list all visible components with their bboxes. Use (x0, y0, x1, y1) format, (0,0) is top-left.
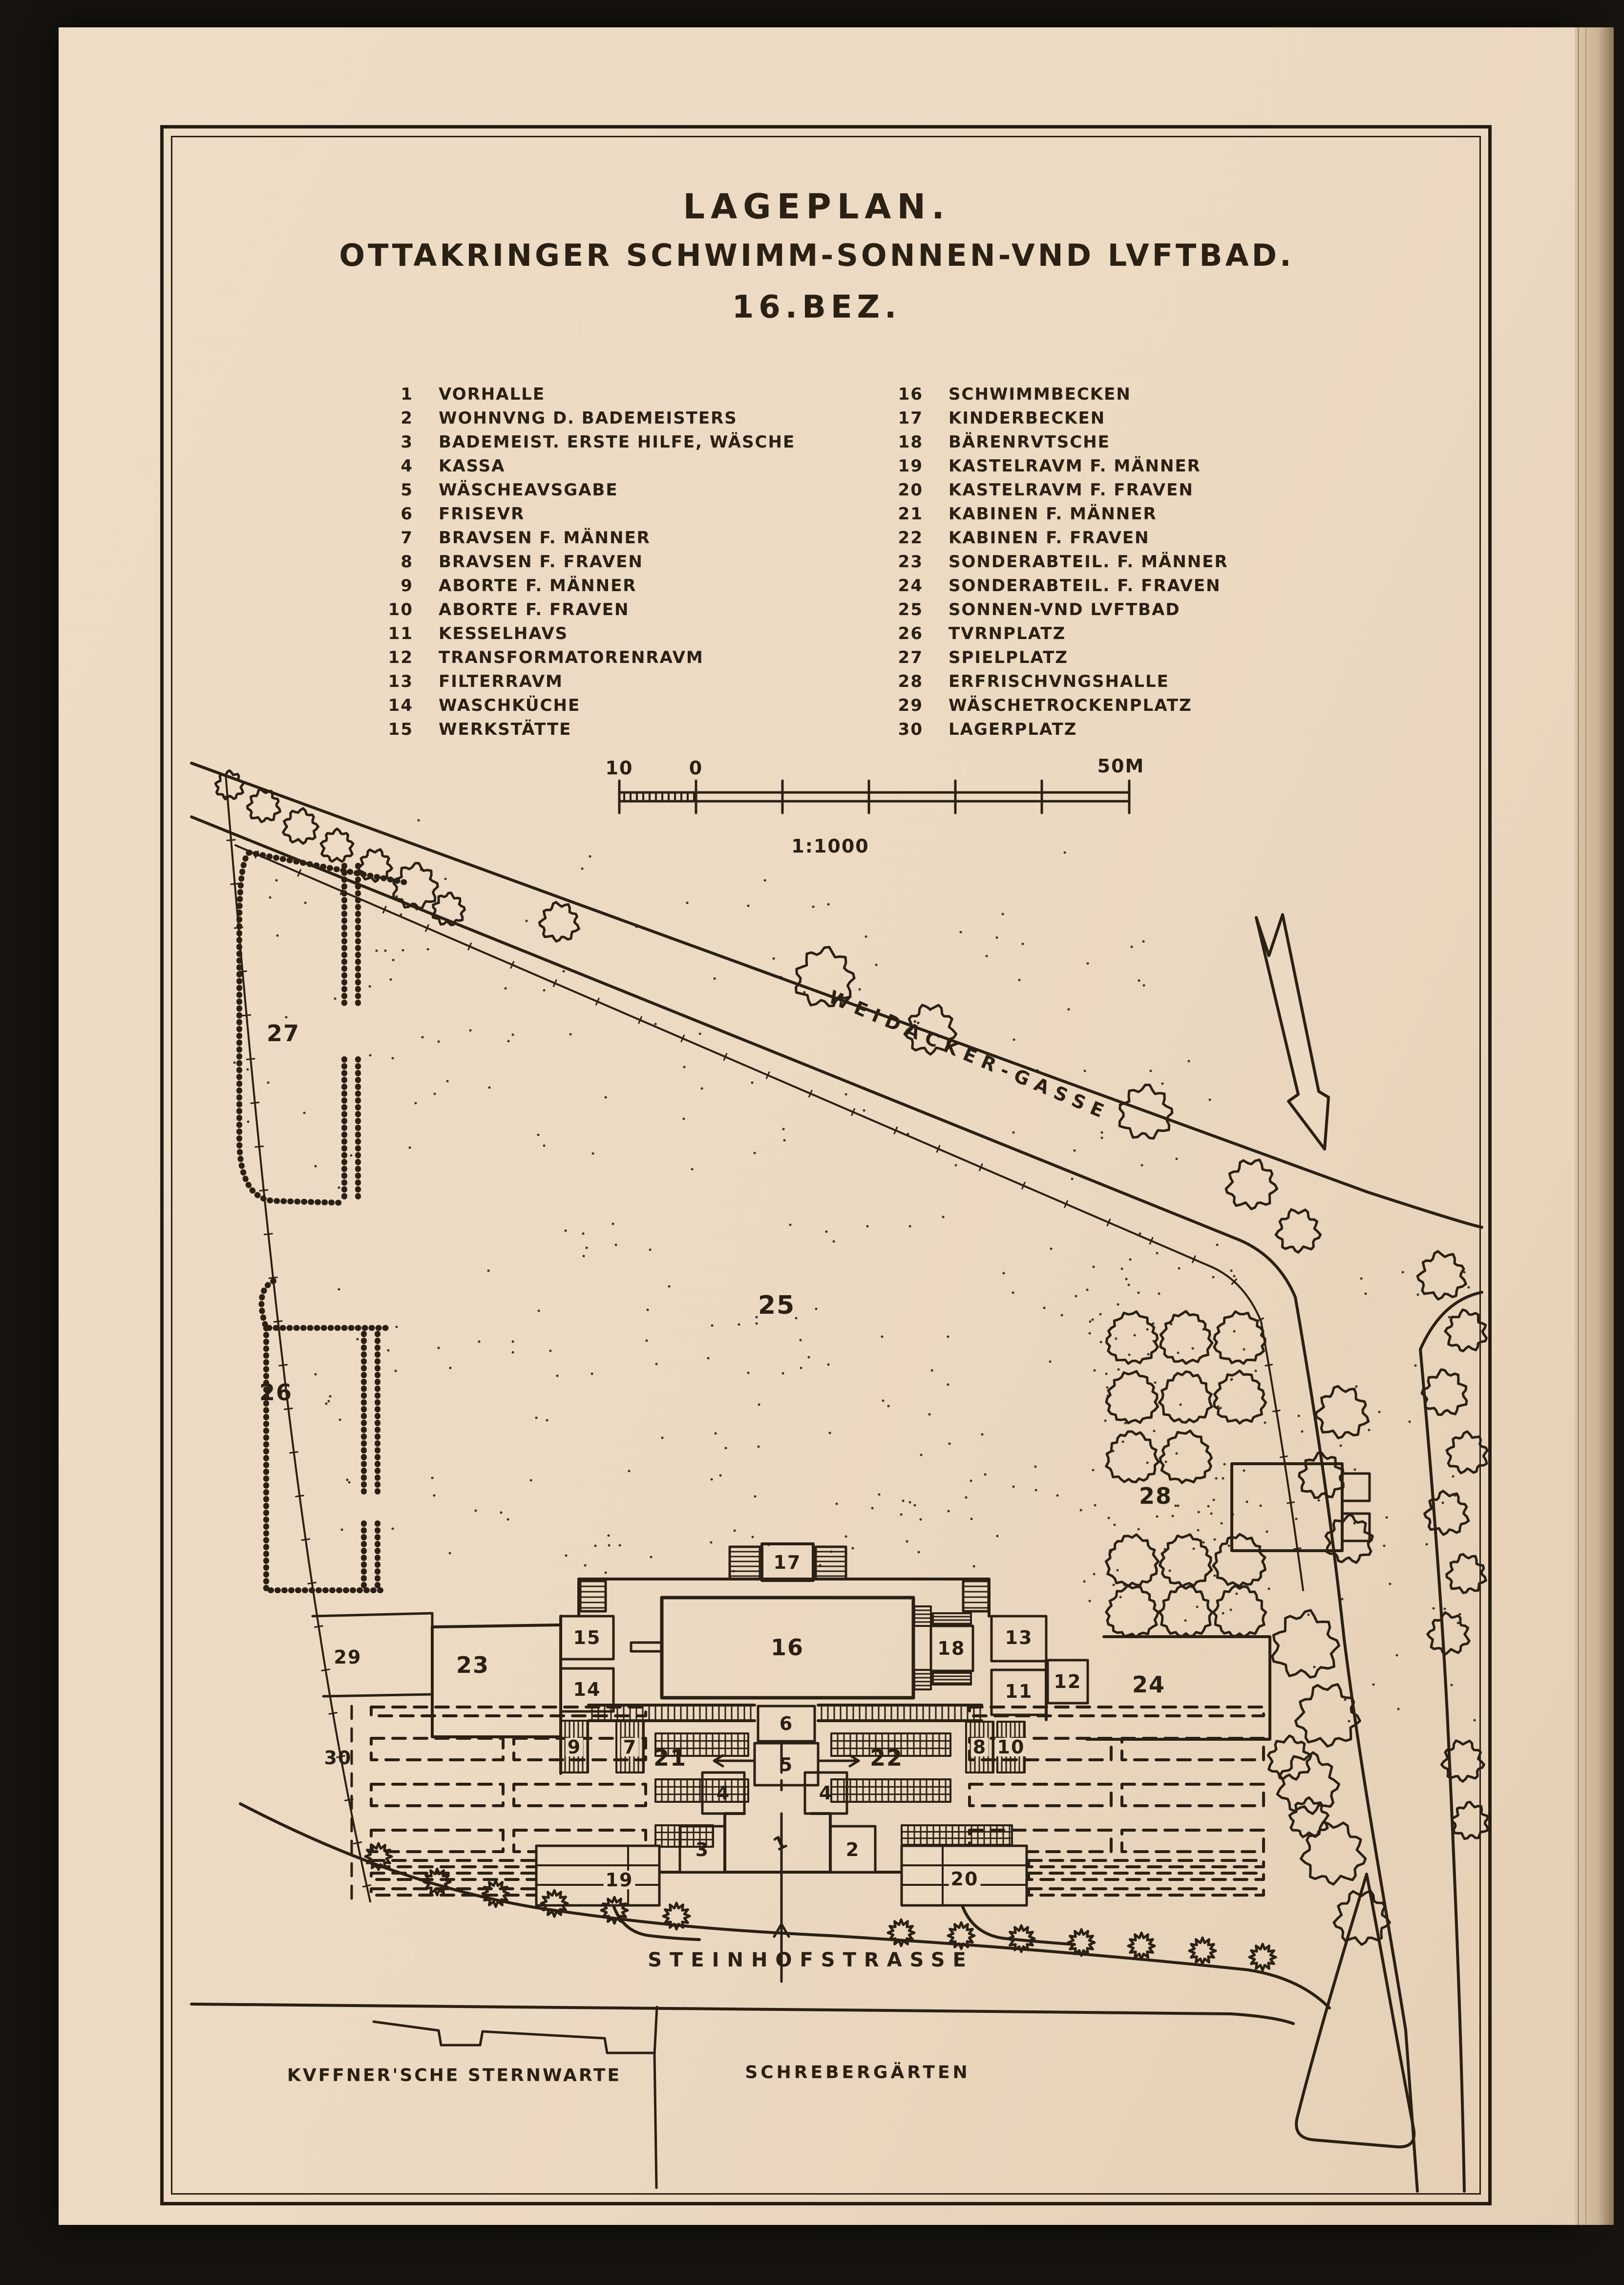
legend-item-number: 10 (372, 600, 413, 619)
plan-label-7: 7 (621, 1738, 639, 1756)
legend-item-number: 17 (882, 408, 923, 428)
legend-item-label: KESSELHAVS (439, 624, 568, 643)
legend-item-label: KINDERBECKEN (949, 408, 1105, 428)
plan-subtitle: OTTAKRINGER SCHWIMM-SONNEN-VND LVFTBAD. (59, 237, 1575, 273)
legend-item-label: WASCHKÜCHE (439, 696, 580, 715)
legend-item-label: ERFRISCHVNGSHALLE (949, 672, 1169, 691)
legend-item-label: SONDERABTEIL. F. FRAVEN (949, 576, 1221, 596)
legend-item-number: 21 (882, 504, 923, 524)
book-page-edge (1575, 27, 1614, 2225)
plan-label-4-right: 4 (819, 1784, 833, 1802)
legend-item-number: 24 (882, 576, 923, 596)
plan-label-22: 22 (870, 1747, 903, 1769)
legend-item: 23SONDERABTEIL. F. MÄNNER (882, 550, 1228, 574)
legend-item: 17KINDERBECKEN (882, 406, 1228, 430)
street-label-steinhofstrasse: STEINHOFSTRASSE (648, 1949, 974, 1971)
legend-item-number: 13 (372, 672, 413, 691)
plan-label-8: 8 (971, 1738, 989, 1756)
legend-item-label: WÄSCHETROCKENPLATZ (949, 696, 1192, 715)
legend-item-number: 15 (372, 720, 413, 739)
plan-label-18: 18 (936, 1639, 968, 1658)
legend-item: 12TRANSFORMATORENRAVM (372, 645, 795, 669)
legend-item: 7BRAVSEN F. MÄNNER (372, 526, 795, 550)
legend-item-label: KASTELRAVM F. FRAVEN (949, 480, 1194, 500)
legend-item: 3BADEMEIST. ERSTE HILFE, WÄSCHE (372, 430, 795, 454)
legend-item: 18BÄRENRVTSCHE (882, 430, 1228, 454)
legend-item-number: 26 (882, 624, 923, 643)
legend-item-label: BRAVSEN F. FRAVEN (439, 552, 643, 572)
legend-item-number: 23 (882, 552, 923, 572)
legend-item-number: 12 (372, 648, 413, 667)
legend-item: 19KASTELRAVM F. MÄNNER (882, 454, 1228, 478)
legend-item-number: 3 (372, 432, 413, 452)
legend-item-label: WÄSCHEAVSGABE (439, 480, 618, 500)
plan-label-3: 3 (696, 1840, 709, 1859)
legend-item: 9ABORTE F. MÄNNER (372, 574, 795, 598)
plan-label-30: 30 (324, 1749, 352, 1767)
plan-label-24: 24 (1132, 1673, 1165, 1696)
legend-item: 11KESSELHAVS (372, 621, 795, 645)
legend-item-label: TRANSFORMATORENRAVM (439, 648, 704, 667)
legend-item-label: VORHALLE (439, 384, 545, 404)
legend-item-label: ABORTE F. FRAVEN (439, 600, 629, 619)
legend-item-number: 18 (882, 432, 923, 452)
plan-label-17: 17 (774, 1553, 801, 1572)
legend-item-label: ABORTE F. MÄNNER (439, 576, 637, 596)
plan-label-19: 19 (604, 1871, 635, 1889)
legend-column-1: 1VORHALLE2WOHNVNG D. BADEMEISTERS3BADEME… (372, 382, 795, 741)
plan-label-2: 2 (846, 1840, 860, 1859)
legend-item-number: 4 (372, 456, 413, 476)
legend-item: 2WOHNVNG D. BADEMEISTERS (372, 406, 795, 430)
legend-column-2: 16SCHWIMMBECKEN17KINDERBECKEN18BÄRENRVTS… (882, 382, 1228, 741)
plan-label-6: 6 (780, 1714, 793, 1733)
legend-item-number: 27 (882, 648, 923, 667)
legend-item-number: 2 (372, 408, 413, 428)
area-label-kuffner-sternwarte: KVFFNER'SCHE STERNWARTE (287, 2066, 621, 2086)
legend-item: 4KASSA (372, 454, 795, 478)
plan-title: LAGEPLAN. (59, 187, 1575, 227)
plan-label-28: 28 (1139, 1485, 1172, 1507)
legend-item-number: 30 (882, 720, 923, 739)
plan-label-27: 27 (267, 1022, 300, 1045)
plan-label-21: 21 (654, 1747, 687, 1769)
scale-label-ratio: 1:1000 (791, 837, 869, 855)
legend-item-number: 1 (372, 384, 413, 404)
legend-item-label: LAGERPLATZ (949, 720, 1077, 739)
plan-label-14: 14 (573, 1680, 601, 1699)
legend-item-label: SCHWIMMBECKEN (949, 384, 1131, 404)
legend-item-label: SPIELPLATZ (949, 648, 1068, 667)
scale-label-50m: 50M (1097, 757, 1145, 775)
plan-label-12: 12 (1054, 1672, 1082, 1691)
plan-label-25: 25 (758, 1293, 795, 1318)
legend-item-number: 11 (372, 624, 413, 643)
legend-item-label: FILTERRAVM (439, 672, 563, 691)
legend-item: 10ABORTE F. FRAVEN (372, 598, 795, 621)
legend-item-number: 6 (372, 504, 413, 524)
plan-label-4-left: 4 (717, 1784, 730, 1802)
legend-item: 8BRAVSEN F. FRAVEN (372, 550, 795, 574)
legend-item-number: 25 (882, 600, 923, 619)
legend-item-label: SONDERABTEIL. F. MÄNNER (949, 552, 1228, 572)
legend-item: 28ERFRISCHVNGSHALLE (882, 669, 1228, 693)
plan-label-11: 11 (1005, 1682, 1033, 1701)
legend-item-label: BÄRENRVTSCHE (949, 432, 1110, 452)
legend-item: 27SPIELPLATZ (882, 645, 1228, 669)
plan-label-15: 15 (573, 1628, 601, 1647)
legend-item-label: KABINEN F. FRAVEN (949, 528, 1150, 548)
legend-item-number: 7 (372, 528, 413, 548)
area-label-schrebergaerten: SCHREBERGÄRTEN (745, 2063, 970, 2083)
legend-item-number: 29 (882, 696, 923, 715)
legend-item-number: 8 (372, 552, 413, 572)
legend-item-label: WERKSTÄTTE (439, 720, 571, 739)
plan-label-9: 9 (566, 1738, 583, 1756)
sheet-border-inner (171, 136, 1481, 2195)
legend-item-number: 14 (372, 696, 413, 715)
legend-item-number: 9 (372, 576, 413, 596)
legend-item: 13FILTERRAVM (372, 669, 795, 693)
plan-label-29: 29 (334, 1648, 362, 1666)
legend-item-label: BADEMEIST. ERSTE HILFE, WÄSCHE (439, 432, 795, 452)
scale-label-10: 10 (606, 759, 633, 777)
plan-label-16: 16 (771, 1636, 804, 1659)
legend-item-label: FRISEVR (439, 504, 525, 524)
legend-item-number: 22 (882, 528, 923, 548)
plan-district: 16.BEZ. (59, 289, 1575, 325)
legend-item-number: 20 (882, 480, 923, 500)
legend-item: 30LAGERPLATZ (882, 717, 1228, 741)
legend-item: 6FRISEVR (372, 502, 795, 526)
legend-item: 22KABINEN F. FRAVEN (882, 526, 1228, 550)
legend-item-number: 16 (882, 384, 923, 404)
legend-item-label: KASSA (439, 456, 505, 476)
legend-item-number: 5 (372, 480, 413, 500)
scanned-book-page: LAGEPLAN. OTTAKRINGER SCHWIMM-SONNEN-VND… (0, 0, 1624, 2285)
legend-item: 29WÄSCHETROCKENPLATZ (882, 693, 1228, 717)
legend-item: 25SONNEN-VND LVFTBAD (882, 598, 1228, 621)
legend-item: 26TVRNPLATZ (882, 621, 1228, 645)
legend-item: 15WERKSTÄTTE (372, 717, 795, 741)
legend-item-label: KASTELRAVM F. MÄNNER (949, 456, 1201, 476)
plan-label-26: 26 (259, 1381, 293, 1404)
legend-item: 21KABINEN F. MÄNNER (882, 502, 1228, 526)
plan-label-20: 20 (949, 1870, 981, 1888)
plan-label-23: 23 (456, 1654, 489, 1676)
legend-item: 1VORHALLE (372, 382, 795, 406)
legend-item: 14WASCHKÜCHE (372, 693, 795, 717)
legend-item-number: 28 (882, 672, 923, 691)
legend-item-number: 19 (882, 456, 923, 476)
scale-label-0: 0 (689, 759, 703, 777)
legend-item-label: BRAVSEN F. MÄNNER (439, 528, 651, 548)
legend-item: 5WÄSCHEAVSGABE (372, 478, 795, 502)
plan-label-5: 5 (780, 1755, 793, 1774)
plan-label-13: 13 (1005, 1628, 1033, 1647)
legend-item: 20KASTELRAVM F. FRAVEN (882, 478, 1228, 502)
legend-item-label: SONNEN-VND LVFTBAD (949, 600, 1181, 619)
legend-item-label: KABINEN F. MÄNNER (949, 504, 1157, 524)
plan-label-10: 10 (995, 1738, 1027, 1756)
legend-item-label: WOHNVNG D. BADEMEISTERS (439, 408, 738, 428)
legend-item: 24SONDERABTEIL. F. FRAVEN (882, 574, 1228, 598)
legend-item: 16SCHWIMMBECKEN (882, 382, 1228, 406)
legend-item-label: TVRNPLATZ (949, 624, 1066, 643)
